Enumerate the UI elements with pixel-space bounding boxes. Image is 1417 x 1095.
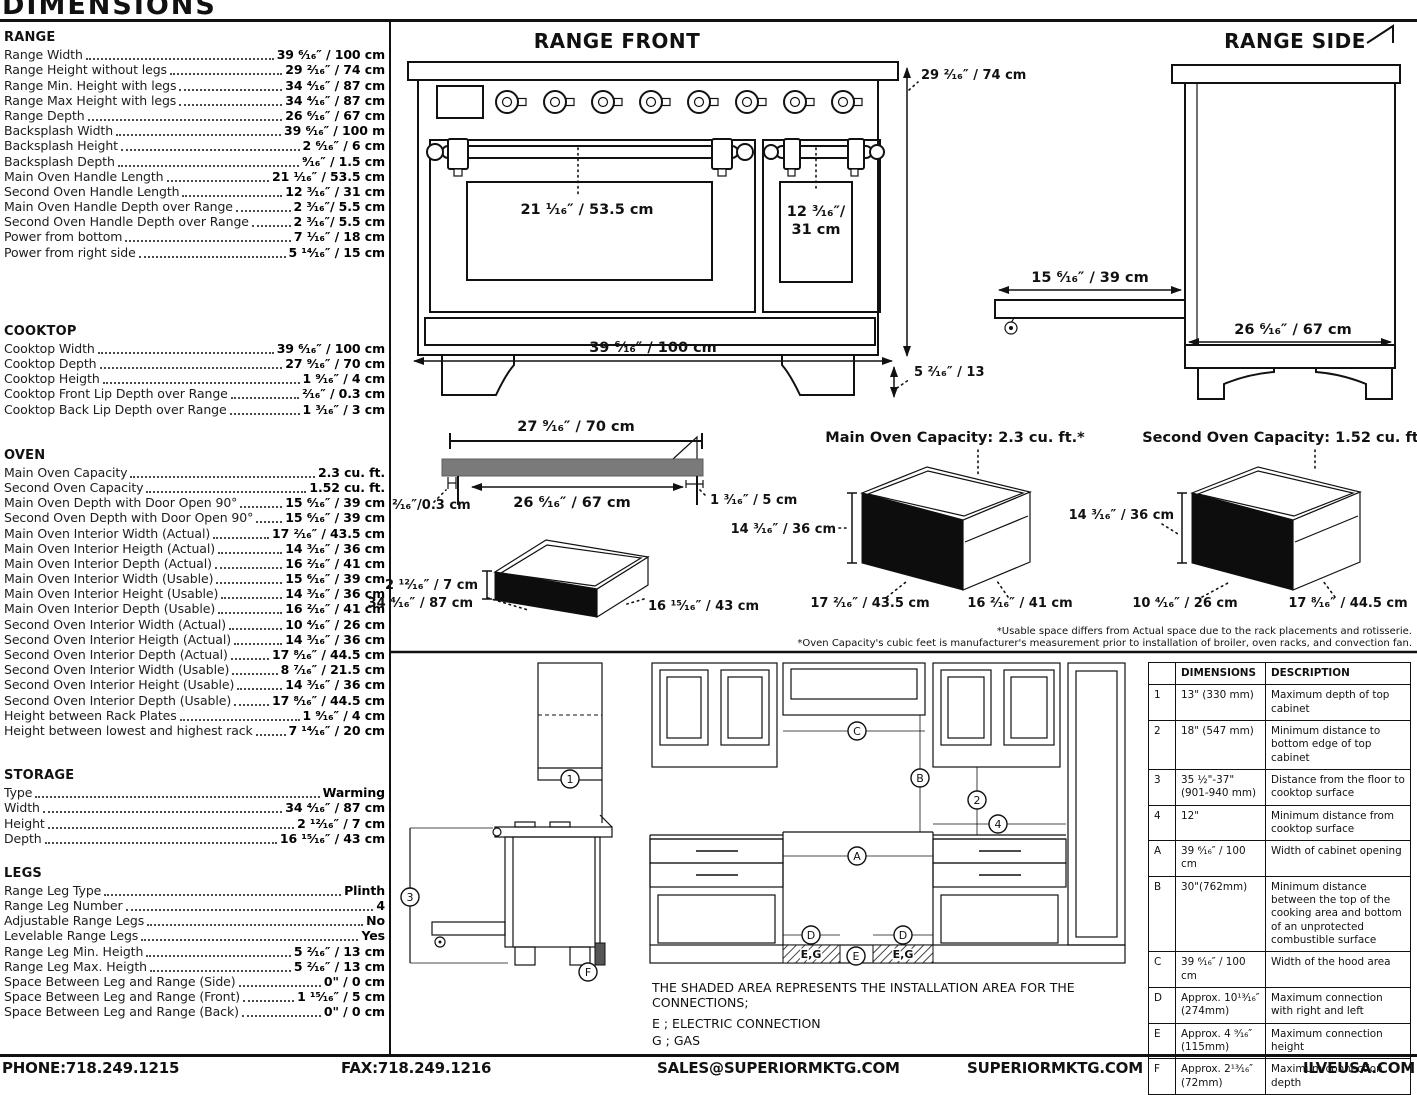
main-door-dim: 21 ¹⁄₁₆″ / 53.5 cm	[520, 202, 653, 218]
second-oven-height-dim: 14 ³⁄₁₆″ / 36 cm	[1069, 508, 1174, 523]
spec-column: RANGE Range Width 39 ⁶⁄₁₆″ / 100 cm Rang…	[4, 30, 385, 1019]
dotted-leader	[86, 58, 274, 60]
dotted-leader	[236, 210, 291, 212]
installation-dimensions-table: DIMENSIONS DESCRIPTION 1 13" (330 mm) Ma…	[1148, 662, 1411, 1095]
spec-row: Range Leg Number 4	[4, 898, 385, 913]
spec-label: Main Oven Interior Width (Usable)	[4, 571, 213, 586]
spec-label: Type	[4, 785, 32, 800]
table-dimension-cell: 30"(762mm)	[1176, 876, 1266, 952]
spec-value: 17 ⁸⁄₁₆″ / 44.5 cm	[272, 693, 385, 708]
spec-value: 15 ⁶⁄₁₆″ / 39 cm	[285, 495, 385, 510]
spec-label: Main Oven Capacity	[4, 465, 127, 480]
cooktop-profile-drawing: 27 ⁹⁄₁₆″ / 70 cm 26 ⁶⁄₁₆″ / 67 cm 1 ³⁄₁₆…	[392, 419, 797, 513]
spec-label: Cooktop Heigth	[4, 371, 100, 386]
spec-row: Cooktop Heigth 1 ⁹⁄₁₆″ / 4 cm	[4, 371, 385, 386]
table-dimension-cell: Approx. 10¹³⁄₁₆″ (274mm)	[1176, 987, 1266, 1023]
table-description-cell: Width of cabinet opening	[1266, 841, 1411, 877]
dotted-leader	[116, 134, 281, 136]
dotted-leader	[239, 985, 321, 987]
dotted-leader	[48, 827, 294, 829]
table-description-cell: Maximum connection with right and left	[1266, 987, 1411, 1023]
spec-value: 34 ⁴⁄₁₆″ / 87 cm	[285, 800, 385, 815]
range-height-dim: 29 ²⁄₁₆″ / 74 cm	[921, 68, 1026, 83]
callout-3: 3	[407, 891, 414, 904]
spec-label: Cooktop Depth	[4, 356, 97, 371]
dotted-leader	[43, 811, 282, 813]
table-description-cell: Maximum depth of top cabinet	[1266, 685, 1411, 721]
spec-row: Backsplash Depth ⁹⁄₁₆″ / 1.5 cm	[4, 153, 385, 168]
spec-label: Range Max Height with legs	[4, 93, 176, 108]
spec-label: Space Between Leg and Range (Back)	[4, 1004, 239, 1019]
spec-row: Cooktop Width 39 ⁶⁄₁₆″ / 100 cm	[4, 341, 385, 356]
spec-value: 0" / 0 cm	[324, 974, 385, 989]
spec-value: 15 ⁶⁄₁₆″ / 39 cm	[285, 571, 385, 586]
spec-section-title: RANGE	[4, 30, 385, 46]
spec-row: Space Between Leg and Range (Back) 0" / …	[4, 1004, 385, 1019]
spec-label: Second Oven Interior Depth (Actual)	[4, 647, 228, 662]
dotted-leader	[229, 628, 282, 630]
spec-label: Second Oven Interior Height (Usable)	[4, 677, 234, 692]
shaded-area-label: E,G	[801, 948, 822, 961]
dotted-leader	[179, 104, 282, 106]
spec-value: ⁹⁄₁₆″ / 1.5 cm	[302, 154, 385, 169]
spec-row: Main Oven Capacity 2.3 cu. ft.	[4, 465, 385, 480]
dotted-leader	[216, 582, 282, 584]
storage-depth-dim: 16 ¹⁵⁄₁₆″ / 43 cm	[648, 599, 759, 614]
cooktop-frontlip-dim: ²⁄₁₆″/0.3 cm	[392, 498, 471, 513]
dotted-leader	[130, 476, 315, 478]
dotted-leader	[121, 149, 300, 151]
spec-label: Range Leg Type	[4, 883, 101, 898]
table-ref-cell: 1	[1149, 685, 1176, 721]
spec-row: Height 2 ¹²⁄₁₆″ / 7 cm	[4, 815, 385, 830]
spec-row: Levelable Range Legs Yes	[4, 928, 385, 943]
spec-label: Range Leg Min. Heigth	[4, 944, 143, 959]
spec-label: Cooktop Width	[4, 341, 95, 356]
dotted-leader	[179, 89, 282, 91]
cooktop-depth-dim: 26 ⁶⁄₁₆″ / 67 cm	[513, 495, 631, 511]
spec-label: Power from right side	[4, 245, 136, 260]
second-door-dim-2: 31 cm	[792, 222, 841, 238]
table-row: B 30"(762mm) Minimum distance between th…	[1149, 876, 1411, 952]
spec-row: Second Oven Handle Depth over Range 2 ³⁄…	[4, 214, 385, 229]
spec-section-oven: OVEN Main Oven Capacity 2.3 cu. ft. Seco…	[4, 448, 385, 738]
spec-value: 1 ⁹⁄₁₆″ / 4 cm	[303, 371, 386, 386]
table-row: D Approx. 10¹³⁄₁₆″ (274mm) Maximum conne…	[1149, 987, 1411, 1023]
dotted-leader	[218, 552, 282, 554]
spec-row: Backsplash Width 39 ⁶⁄₁₆″ / 100 m	[4, 123, 385, 138]
spec-label: Main Oven Handle Length	[4, 169, 164, 184]
spec-row: Main Oven Interior Depth (Actual) 16 ²⁄₁…	[4, 556, 385, 571]
spec-label: Adjustable Range Legs	[4, 913, 144, 928]
callout-C: C	[853, 725, 861, 738]
range-width-dim: 39 ⁶⁄₁₆″ / 100 cm	[589, 340, 717, 356]
table-ref-cell: E	[1149, 1023, 1176, 1059]
spec-section-legs: LEGS Range Leg Type Plinth Range Leg Num…	[4, 866, 385, 1020]
dotted-leader	[232, 673, 277, 675]
spec-label: Second Oven Handle Depth over Range	[4, 214, 249, 229]
dotted-leader	[234, 643, 282, 645]
table-description-cell: Minimum distance from cooktop surface	[1266, 805, 1411, 841]
spec-row: Power from bottom 7 ¹⁄₁₆″ / 18 cm	[4, 229, 385, 244]
spec-label: Range Leg Number	[4, 898, 123, 913]
gas-connection-label: G ; GAS	[652, 1033, 1132, 1048]
spec-value: 14 ³⁄₁₆″ / 36 cm	[285, 541, 385, 556]
table-dimension-cell: Approx. 2¹³⁄₁₆″ (72mm)	[1176, 1059, 1266, 1095]
table-row: A 39 ⁶⁄₁₆″ / 100 cm Width of cabinet ope…	[1149, 841, 1411, 877]
spec-label: Second Oven Depth with Door Open 90°	[4, 510, 253, 525]
spec-value: 21 ¹⁄₁₆″ / 53.5 cm	[272, 169, 385, 184]
main-oven-capacity-drawing: Main Oven Capacity: 2.3 cu. ft.* 14 ³⁄₁₆…	[731, 430, 1086, 611]
table-header-ref	[1149, 663, 1176, 685]
spec-label: Cooktop Back Lip Depth over Range	[4, 402, 227, 417]
spec-value: 39 ⁶⁄₁₆″ / 100 cm	[277, 341, 385, 356]
spec-row: Second Oven Interior Width (Actual) 10 ⁴…	[4, 616, 385, 631]
spec-value: 34 ⁴⁄₁₆″ / 87 cm	[285, 78, 385, 93]
connection-legend: THE SHADED AREA REPRESENTS THE INSTALLAT…	[652, 980, 1132, 1048]
table-ref-cell: C	[1149, 952, 1176, 988]
cooktop-width-dim: 27 ⁹⁄₁₆″ / 70 cm	[517, 419, 635, 435]
spec-row: Backsplash Height 2 ⁶⁄₁₆″ / 6 cm	[4, 138, 385, 153]
dotted-leader	[100, 367, 283, 369]
installation-elevation: C B 2 4	[650, 663, 1125, 965]
spec-value: 34 ⁴⁄₁₆″ / 87 cm	[285, 93, 385, 108]
spec-row: Adjustable Range Legs No	[4, 913, 385, 928]
table-description-cell: Minimum distance to bottom edge of top c…	[1266, 720, 1411, 769]
spec-row: Main Oven Interior Width (Actual) 17 ²⁄₁…	[4, 525, 385, 540]
spec-row: Second Oven Interior Heigth (Actual) 14 …	[4, 632, 385, 647]
spec-label: Range Width	[4, 47, 83, 62]
spec-value: 29 ²⁄₁₆″ / 74 cm	[285, 62, 385, 77]
main-oven-capacity-title: Main Oven Capacity: 2.3 cu. ft.*	[825, 430, 1085, 446]
dotted-leader	[221, 597, 282, 599]
spec-row: Depth 16 ¹⁵⁄₁₆″ / 43 cm	[4, 831, 385, 846]
spec-row: Second Oven Interior Depth (Actual) 17 ⁸…	[4, 647, 385, 662]
callout-D: D	[807, 929, 815, 942]
spec-row: Space Between Leg and Range (Front) 1 ¹⁵…	[4, 989, 385, 1004]
spec-row: Cooktop Back Lip Depth over Range 1 ³⁄₁₆…	[4, 401, 385, 416]
dotted-leader	[256, 734, 286, 736]
spec-label: Space Between Leg and Range (Front)	[4, 989, 240, 1004]
spec-label: Range Depth	[4, 108, 85, 123]
range-front-drawing: RANGE FRONT	[408, 29, 1026, 397]
dotted-leader	[103, 382, 300, 384]
spec-value: 14 ³⁄₁₆″ / 36 cm	[285, 632, 385, 647]
dotted-leader	[98, 352, 274, 354]
range-side-drawing: RANGE SIDE 15 ⁶⁄₁₆″ / 39 cm 26 ⁶⁄₁₆″ / 6…	[995, 26, 1400, 399]
spec-label: Depth	[4, 831, 42, 846]
shaded-area-note: THE SHADED AREA REPRESENTS THE INSTALLAT…	[652, 980, 1132, 1010]
spec-value: 14 ³⁄₁₆″ / 36 cm	[285, 677, 385, 692]
spec-value: 16 ¹⁵⁄₁₆″ / 43 cm	[280, 831, 385, 846]
spec-row: Main Oven Handle Length 21 ¹⁄₁₆″ / 53.5 …	[4, 169, 385, 184]
spec-value: 7 ¹⁴⁄₁₆″ / 20 cm	[289, 723, 385, 738]
dotted-leader	[237, 688, 282, 690]
callout-4: 4	[995, 818, 1002, 831]
second-oven-width-dim: 10 ⁴⁄₁₆″ / 26 cm	[1132, 596, 1237, 611]
second-oven-capacity-title: Second Oven Capacity: 1.52 cu. ft.*	[1142, 430, 1417, 446]
cooktop-backlip-dim: 1 ³⁄₁₆″ / 5 cm	[710, 493, 797, 508]
spec-row: Range Min. Height with legs 34 ⁴⁄₁₆″ / 8…	[4, 77, 385, 92]
table-dimension-cell: 35 ½"-37" (901-940 mm)	[1176, 769, 1266, 805]
table-ref-cell: 3	[1149, 769, 1176, 805]
spec-row: Second Oven Interior Width (Usable) 8 ⁷⁄…	[4, 662, 385, 677]
table-ref-cell: D	[1149, 987, 1176, 1023]
table-dimension-cell: 12"	[1176, 805, 1266, 841]
table-description-cell: Distance from the floor to cooktop surfa…	[1266, 769, 1411, 805]
dotted-leader	[45, 842, 277, 844]
storage-height-dim: 2 ¹²⁄₁₆″ / 7 cm	[385, 578, 478, 593]
spec-value: 7 ¹⁄₁₆″ / 18 cm	[294, 229, 385, 244]
main-oven-depth-dim: 16 ²⁄₁₆″ / 41 cm	[967, 596, 1072, 611]
spec-value: 4	[376, 898, 385, 913]
spec-label: Range Leg Max. Heigth	[4, 959, 147, 974]
table-description-cell: Maximum connection height	[1266, 1023, 1411, 1059]
dotted-leader	[167, 180, 270, 182]
spec-value: Yes	[361, 928, 385, 943]
table-ref-cell: A	[1149, 841, 1176, 877]
shaded-area-label: E,G	[893, 948, 914, 961]
spec-row: Main Oven Interior Heigth (Actual) 14 ³⁄…	[4, 541, 385, 556]
callout-E: E	[853, 950, 860, 963]
range-depth-dim: 26 ⁶⁄₁₆″ / 67 cm	[1234, 322, 1352, 338]
spec-value: 1 ¹⁵⁄₁₆″ / 5 cm	[297, 989, 385, 1004]
callout-A: A	[853, 850, 861, 863]
spec-row: Range Leg Type Plinth	[4, 883, 385, 898]
spec-value: 2 ³⁄₁₆″/ 5.5 cm	[294, 199, 386, 214]
spec-row: Range Max Height with legs 34 ⁴⁄₁₆″ / 87…	[4, 93, 385, 108]
storage-width-dim: 34 ⁴⁄₁₆″ / 87 cm	[368, 596, 473, 611]
dotted-leader	[215, 567, 282, 569]
spec-label: Height	[4, 816, 45, 831]
spec-label: Power from bottom	[4, 229, 122, 244]
spec-row: Main Oven Handle Depth over Range 2 ³⁄₁₆…	[4, 199, 385, 214]
spec-value: 17 ²⁄₁₆″ / 43.5 cm	[272, 526, 385, 541]
spec-value: 17 ⁸⁄₁₆″ / 44.5 cm	[272, 647, 385, 662]
table-header-dimensions: DIMENSIONS	[1176, 663, 1266, 685]
table-dimension-cell: Approx. 4 ⁹⁄₁₆″ (115mm)	[1176, 1023, 1266, 1059]
spec-value: 1.52 cu. ft.	[309, 480, 385, 495]
spec-label: Second Oven Interior Width (Usable)	[4, 662, 229, 677]
spec-section-cooktop: COOKTOP Cooktop Width 39 ⁶⁄₁₆″ / 100 cm …	[4, 324, 385, 417]
spec-value: Plinth	[344, 883, 385, 898]
dotted-leader	[125, 240, 291, 242]
spec-row: Width 34 ⁴⁄₁₆″ / 87 cm	[4, 800, 385, 815]
top-drawings: RANGE FRONT	[390, 22, 1417, 655]
spec-value: ²⁄₁₆″ / 0.3 cm	[302, 386, 385, 401]
callout-2: 2	[974, 794, 981, 807]
spec-label: Space Between Leg and Range (Side)	[4, 974, 236, 989]
dotted-leader	[170, 73, 282, 75]
spec-value: 0" / 0 cm	[324, 1004, 385, 1019]
footer-fax: FAX:718.249.1216	[341, 1059, 491, 1077]
spec-row: Main Oven Interior Width (Usable) 15 ⁶⁄₁…	[4, 571, 385, 586]
dotted-leader	[146, 955, 291, 957]
spec-row: Power from right side 5 ¹⁴⁄₁₆″ / 15 cm	[4, 244, 385, 259]
spec-value: 16 ²⁄₁₆″ / 41 cm	[285, 556, 385, 571]
dotted-leader	[213, 537, 269, 539]
spec-value: 2 ¹²⁄₁₆″ / 7 cm	[297, 816, 385, 831]
dotted-leader	[256, 521, 282, 523]
dotted-leader	[243, 1000, 294, 1002]
usable-space-note: *Usable space differs from Actual space …	[997, 626, 1412, 637]
table-dimension-cell: 39 ⁶⁄₁₆″ / 100 cm	[1176, 952, 1266, 988]
table-dimension-cell: 39 ⁶⁄₁₆″ / 100 cm	[1176, 841, 1266, 877]
dotted-leader	[150, 970, 291, 972]
spec-value: 5 ²⁄₁₆″ / 13 cm	[294, 944, 385, 959]
installation-side-view: 1 F 3	[401, 663, 612, 981]
spec-value: 27 ⁹⁄₁₆″ / 70 cm	[285, 356, 385, 371]
spec-label: Main Oven Interior Height (Usable)	[4, 586, 218, 601]
spec-value: 1 ³⁄₁₆″ / 3 cm	[303, 402, 386, 417]
dotted-leader	[218, 612, 282, 614]
spec-label: Main Oven Interior Depth (Usable)	[4, 601, 215, 616]
table-ref-cell: F	[1149, 1059, 1176, 1095]
spec-row: Range Leg Min. Heigth 5 ²⁄₁₆″ / 13 cm	[4, 943, 385, 958]
spec-value: 12 ³⁄₁₆″ / 31 cm	[285, 184, 385, 199]
spec-section-range: RANGE Range Width 39 ⁶⁄₁₆″ / 100 cm Rang…	[4, 30, 385, 260]
spec-row: Range Depth 26 ⁶⁄₁₆″ / 67 cm	[4, 108, 385, 123]
spec-section-storage: STORAGE Type Warming Width 34 ⁴⁄₁₆″ / 87…	[4, 768, 385, 846]
main-oven-width-dim: 17 ²⁄₁₆″ / 43.5 cm	[810, 596, 929, 611]
callout-F: F	[585, 966, 591, 979]
spec-value: 26 ⁶⁄₁₆″ / 67 cm	[285, 108, 385, 123]
spec-section-title: OVEN	[4, 448, 385, 464]
main-oven-height-dim: 14 ³⁄₁₆″ / 36 cm	[731, 522, 836, 537]
spec-value: 2.3 cu. ft.	[318, 465, 385, 480]
dotted-leader	[147, 924, 363, 926]
spec-label: Second Oven Interior Heigth (Actual)	[4, 632, 231, 647]
dotted-leader	[118, 165, 299, 167]
spec-value: 5 ¹⁴⁄₁₆″ / 15 cm	[289, 245, 385, 260]
table-row: C 39 ⁶⁄₁₆″ / 100 cm Width of the hood ar…	[1149, 952, 1411, 988]
leg-height-dim: 5 ²⁄₁₆″ / 13	[914, 365, 985, 380]
spec-label: Main Oven Handle Depth over Range	[4, 199, 233, 214]
spec-value: 1 ⁹⁄₁₆″ / 4 cm	[303, 708, 386, 723]
dotted-leader	[126, 909, 374, 911]
dotted-leader	[231, 397, 299, 399]
table-row: E Approx. 4 ⁹⁄₁₆″ (115mm) Maximum connec…	[1149, 1023, 1411, 1059]
storage-drawer-drawing: 2 ¹²⁄₁₆″ / 7 cm 34 ⁴⁄₁₆″ / 87 cm 16 ¹⁵⁄₁…	[368, 540, 759, 617]
table-row: 3 35 ½"-37" (901-940 mm) Distance from t…	[1149, 769, 1411, 805]
table-dimension-cell: 13" (330 mm)	[1176, 685, 1266, 721]
spec-section-title: LEGS	[4, 866, 385, 882]
dotted-leader	[35, 796, 319, 798]
dotted-leader	[139, 256, 286, 258]
spec-row: Second Oven Depth with Door Open 90° 15 …	[4, 510, 385, 525]
dotted-leader	[231, 658, 269, 660]
table-row: 4 12" Minimum distance from cooktop surf…	[1149, 805, 1411, 841]
footer-ilve-website: ILVEUSA.COM	[1303, 1059, 1415, 1077]
dotted-leader	[242, 1015, 321, 1017]
dotted-leader	[240, 506, 282, 508]
callout-D: D	[899, 929, 907, 942]
dotted-leader	[146, 491, 306, 493]
spec-row: Main Oven Interior Depth (Usable) 16 ²⁄₁…	[4, 601, 385, 616]
table-row: 2 18" (547 mm) Minimum distance to botto…	[1149, 720, 1411, 769]
electric-connection-label: E ; ELECTRIC CONNECTION	[652, 1016, 1132, 1031]
page-title: DIMENSIONS	[2, 0, 217, 19]
spec-row: Cooktop Front Lip Depth over Range ²⁄₁₆″…	[4, 386, 385, 401]
spec-label: Range Height without legs	[4, 62, 167, 77]
spec-row: Cooktop Depth 27 ⁹⁄₁₆″ / 70 cm	[4, 356, 385, 371]
table-header-description: DESCRIPTION	[1266, 663, 1411, 685]
table-header-row: DIMENSIONS DESCRIPTION	[1149, 663, 1411, 685]
spec-value: 39 ⁶⁄₁₆″ / 100 m	[284, 123, 385, 138]
spec-value: Warming	[323, 785, 385, 800]
door-open-dim: 15 ⁶⁄₁₆″ / 39 cm	[1031, 270, 1149, 286]
spec-value: 2 ⁶⁄₁₆″ / 6 cm	[303, 138, 386, 153]
dotted-leader	[180, 719, 300, 721]
second-door-dim-1: 12 ³⁄₁₆″/	[787, 204, 846, 220]
spec-row: Main Oven Interior Height (Usable) 14 ³⁄…	[4, 586, 385, 601]
spec-value: 5 ²⁄₁₆″ / 13 cm	[294, 959, 385, 974]
footer-sales-email: SALES@SUPERIORMKTG.COM	[657, 1059, 900, 1077]
spec-value: 10 ⁴⁄₁₆″ / 26 cm	[285, 617, 385, 632]
spec-row: Height between lowest and highest rack 7…	[4, 723, 385, 738]
dotted-leader	[252, 225, 291, 227]
table-ref-cell: 2	[1149, 720, 1176, 769]
footer-phone: PHONE:718.249.1215	[2, 1059, 179, 1077]
spec-label: Height between lowest and highest rack	[4, 723, 253, 738]
spec-label: Main Oven Interior Heigth (Actual)	[4, 541, 215, 556]
capacity-note: *Oven Capacity's cubic feet is manufactu…	[797, 638, 1412, 649]
spec-label: Range Min. Height with legs	[4, 78, 176, 93]
spec-value: 15 ⁶⁄₁₆″ / 39 cm	[285, 510, 385, 525]
spec-label: Main Oven Depth with Door Open 90°	[4, 495, 237, 510]
table-ref-cell: 4	[1149, 805, 1176, 841]
spec-section-title: COOKTOP	[4, 324, 385, 340]
spec-section-title: STORAGE	[4, 768, 385, 784]
spec-label: Second Oven Interior Width (Actual)	[4, 617, 226, 632]
spec-row: Range Leg Max. Heigth 5 ²⁄₁₆″ / 13 cm	[4, 959, 385, 974]
spec-row: Main Oven Depth with Door Open 90° 15 ⁶⁄…	[4, 495, 385, 510]
dotted-leader	[230, 413, 300, 415]
table-row: 1 13" (330 mm) Maximum depth of top cabi…	[1149, 685, 1411, 721]
spec-row: Space Between Leg and Range (Side) 0" / …	[4, 974, 385, 989]
dotted-leader	[88, 119, 283, 121]
dotted-leader	[234, 704, 269, 706]
spec-row: Range Height without legs 29 ²⁄₁₆″ / 74 …	[4, 62, 385, 77]
spec-label: Second Oven Handle Length	[4, 184, 179, 199]
callout-1: 1	[567, 773, 574, 786]
footer-website: SUPERIORMKTG.COM	[967, 1059, 1143, 1077]
dotted-leader	[104, 894, 341, 896]
spec-label: Main Oven Interior Depth (Actual)	[4, 556, 212, 571]
range-side-title: RANGE SIDE	[1224, 29, 1366, 53]
spec-label: Levelable Range Legs	[4, 928, 138, 943]
second-oven-capacity-drawing: Second Oven Capacity: 1.52 cu. ft.* 14 ³…	[1069, 430, 1417, 611]
range-front-title: RANGE FRONT	[534, 29, 701, 53]
spec-row: Second Oven Interior Height (Usable) 14 …	[4, 677, 385, 692]
spec-label: Width	[4, 800, 40, 815]
spec-row: Type Warming	[4, 785, 385, 800]
dotted-leader	[141, 939, 358, 941]
spec-value: 8 ⁷⁄₁₆″ / 21.5 cm	[281, 662, 385, 677]
table-ref-cell: B	[1149, 876, 1176, 952]
spec-label: Backsplash Width	[4, 123, 113, 138]
callout-B: B	[916, 772, 924, 785]
spec-label: Second Oven Capacity	[4, 480, 143, 495]
spec-value: 2 ³⁄₁₆″/ 5.5 cm	[294, 214, 386, 229]
spec-label: Cooktop Front Lip Depth over Range	[4, 386, 228, 401]
spec-row: Range Width 39 ⁶⁄₁₆″ / 100 cm	[4, 47, 385, 62]
spec-row: Second Oven Interior Depth (Usable) 17 ⁸…	[4, 692, 385, 707]
spec-value: 39 ⁶⁄₁₆″ / 100 cm	[277, 47, 385, 62]
table-description-cell: Minimum distance between the top of the …	[1266, 876, 1411, 952]
spec-row: Second Oven Capacity 1.52 cu. ft.	[4, 480, 385, 495]
spec-label: Backsplash Depth	[4, 154, 115, 169]
